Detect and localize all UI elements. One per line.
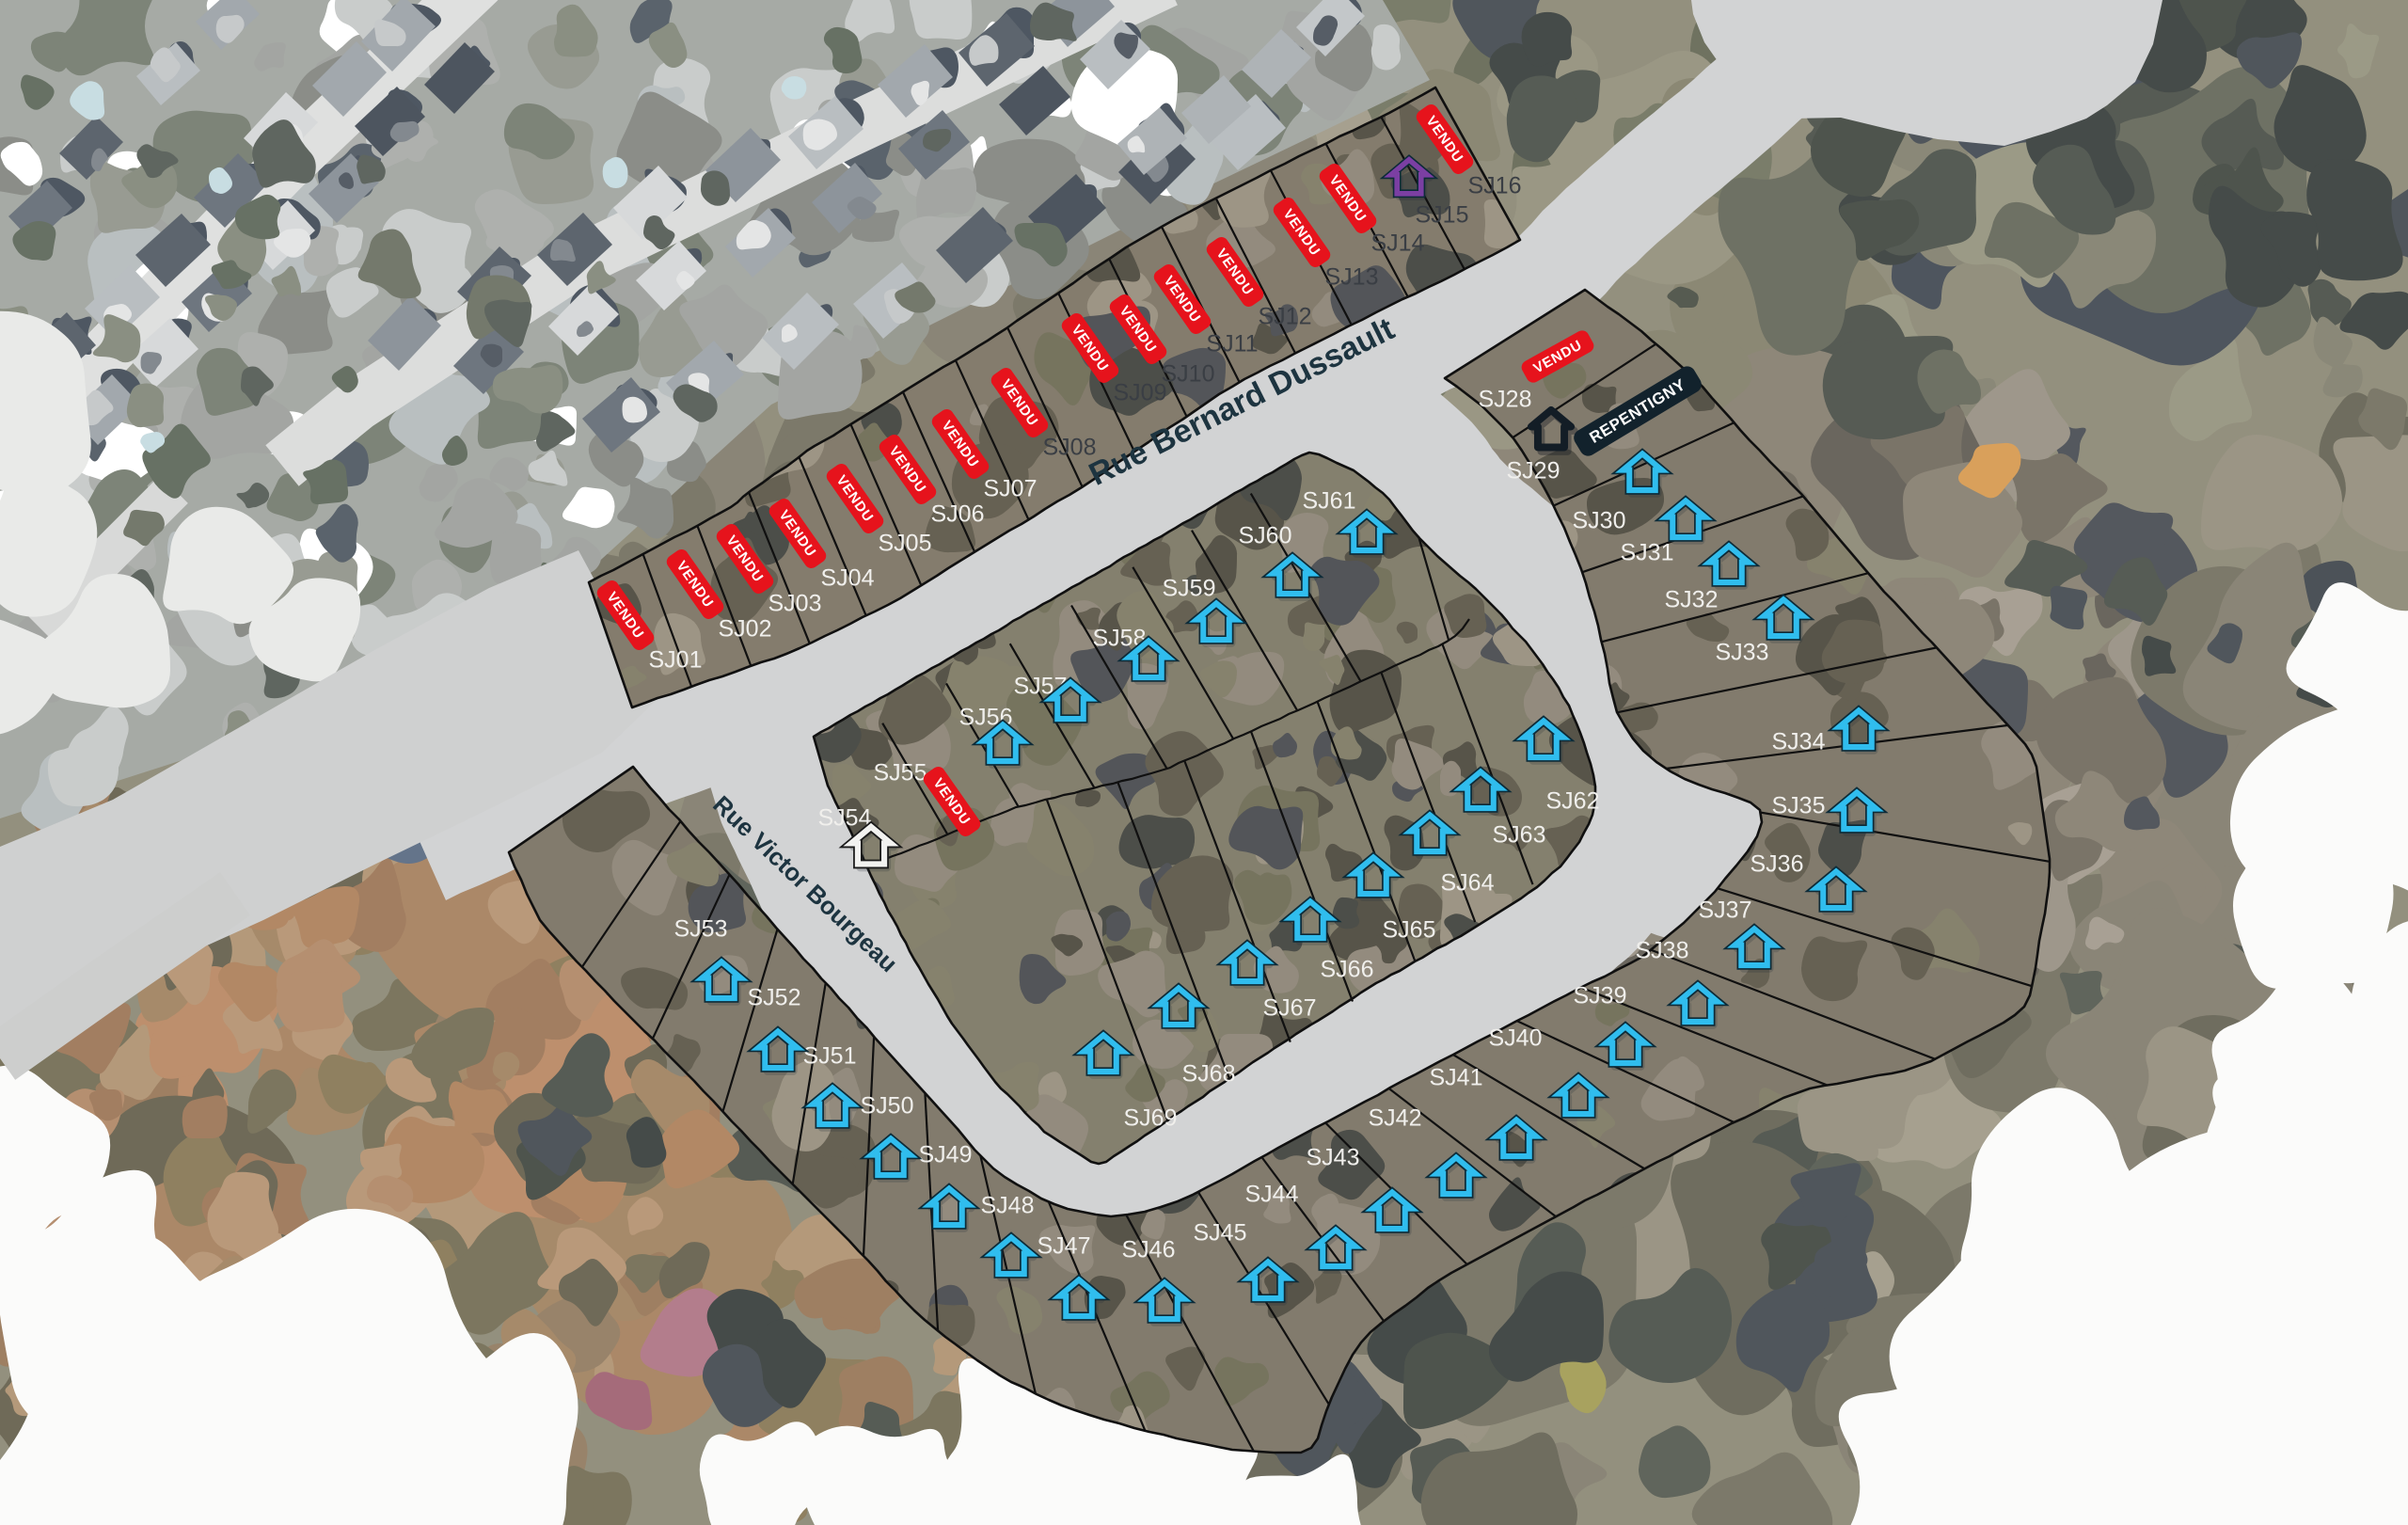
svg-text:SJ60: SJ60	[1239, 523, 1292, 549]
svg-text:SJ13: SJ13	[1325, 264, 1379, 291]
svg-text:SJ33: SJ33	[1716, 640, 1769, 666]
svg-text:SJ11: SJ11	[1206, 331, 1258, 357]
svg-text:SJ53: SJ53	[674, 916, 728, 943]
svg-text:SJ08: SJ08	[1043, 435, 1097, 461]
svg-text:SJ10: SJ10	[1162, 361, 1215, 388]
svg-text:SJ39: SJ39	[1574, 983, 1627, 1009]
svg-text:SJ41: SJ41	[1430, 1065, 1483, 1091]
svg-text:SJ67: SJ67	[1263, 995, 1317, 1022]
svg-text:SJ52: SJ52	[748, 985, 801, 1011]
svg-text:SJ31: SJ31	[1621, 540, 1674, 566]
svg-text:SJ50: SJ50	[861, 1093, 914, 1120]
svg-text:SJ65: SJ65	[1383, 917, 1436, 944]
svg-text:SJ64: SJ64	[1441, 870, 1495, 897]
svg-text:SJ30: SJ30	[1573, 508, 1626, 534]
svg-text:SJ44: SJ44	[1245, 1182, 1299, 1208]
svg-text:SJ07: SJ07	[984, 476, 1038, 502]
svg-text:SJ04: SJ04	[821, 565, 875, 592]
svg-text:SJ05: SJ05	[879, 531, 932, 557]
svg-text:SJ14: SJ14	[1371, 230, 1425, 257]
svg-text:SJ38: SJ38	[1636, 938, 1689, 964]
svg-text:SJ29: SJ29	[1507, 458, 1560, 485]
svg-text:SJ16: SJ16	[1468, 173, 1522, 199]
svg-text:SJ69: SJ69	[1124, 1105, 1178, 1132]
svg-text:SJ12: SJ12	[1259, 304, 1312, 330]
svg-text:SJ36: SJ36	[1751, 851, 1804, 878]
svg-text:SJ37: SJ37	[1699, 898, 1752, 924]
svg-text:SJ43: SJ43	[1307, 1145, 1360, 1171]
svg-text:SJ45: SJ45	[1194, 1220, 1247, 1247]
svg-text:SJ51: SJ51	[803, 1043, 857, 1070]
svg-text:SJ42: SJ42	[1369, 1105, 1422, 1132]
svg-text:SJ63: SJ63	[1493, 822, 1546, 849]
svg-text:SJ68: SJ68	[1182, 1061, 1236, 1088]
svg-text:SJ34: SJ34	[1772, 729, 1826, 755]
svg-text:SJ59: SJ59	[1163, 576, 1216, 602]
svg-text:SJ46: SJ46	[1122, 1237, 1176, 1263]
svg-text:SJ55: SJ55	[874, 760, 927, 786]
svg-text:SJ66: SJ66	[1321, 957, 1374, 983]
svg-text:SJ01: SJ01	[649, 647, 703, 674]
svg-text:SJ09: SJ09	[1114, 380, 1167, 406]
svg-text:SJ15: SJ15	[1416, 202, 1469, 229]
svg-text:SJ32: SJ32	[1665, 587, 1719, 613]
svg-text:SJ49: SJ49	[919, 1142, 973, 1168]
svg-text:SJ61: SJ61	[1303, 488, 1356, 515]
svg-text:SJ28: SJ28	[1479, 387, 1532, 413]
svg-text:SJ03: SJ03	[768, 591, 822, 617]
svg-text:SJ48: SJ48	[981, 1193, 1035, 1219]
svg-text:SJ06: SJ06	[931, 501, 985, 528]
svg-text:SJ62: SJ62	[1546, 788, 1600, 815]
svg-text:SJ47: SJ47	[1038, 1233, 1091, 1260]
svg-text:SJ40: SJ40	[1489, 1025, 1543, 1052]
svg-text:SJ02: SJ02	[719, 616, 772, 643]
svg-text:SJ35: SJ35	[1772, 793, 1826, 819]
